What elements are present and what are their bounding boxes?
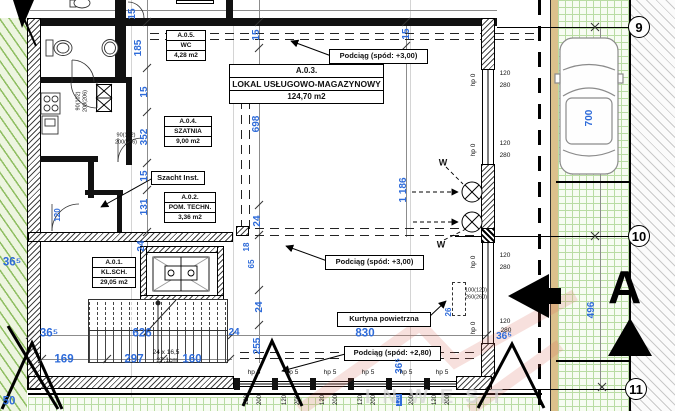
dim-label: 200 <box>295 395 301 405</box>
fan-symbols <box>462 182 482 232</box>
dim-label: 24 <box>253 215 263 226</box>
dim-label: 120 <box>500 141 511 148</box>
dim-label: 200(206) <box>115 140 137 146</box>
room-label-a05: A.0.5. WC 4,28 m2 <box>166 30 206 61</box>
callout-podciag-300-top: Podciąg (spód: +3,00) <box>329 49 428 64</box>
dim-label: 700 <box>585 110 595 127</box>
kitchen-fixtures <box>41 93 60 134</box>
clipped-room-label <box>176 0 214 4</box>
dim-label: hp 5 <box>362 370 375 377</box>
dim-label: 200 <box>333 395 339 405</box>
dim-label: W <box>439 159 448 168</box>
dim-label: 90(102) <box>76 92 82 111</box>
section-letter: A <box>608 264 641 310</box>
dim-label: 24 x 16,5 <box>153 350 180 357</box>
dim-label: 90(102) <box>117 133 136 139</box>
dim-label: 352 <box>140 129 150 146</box>
dim-label: 280 <box>501 328 512 335</box>
grid-bubble-11: 11 <box>625 378 647 400</box>
section-line-zigzag <box>2 326 544 409</box>
dim-label: hp 5 <box>248 370 261 377</box>
wc-fixtures <box>46 0 118 57</box>
dim-label: 24 <box>228 328 239 338</box>
dim-label: 24 <box>255 301 265 312</box>
dim-label: W <box>437 241 446 250</box>
dim-label: 496 <box>587 302 597 319</box>
dim-label: 160 <box>182 354 201 366</box>
dim-label: 15 <box>140 170 150 181</box>
dim-label: 1 186 <box>399 177 409 202</box>
dim-label: 169 <box>54 354 73 366</box>
floor-plan-drawing: A.0.5. WC 4,28 m2 A.0.4. SZATNIA 9,00 m2… <box>0 0 675 411</box>
room-id: A.0.4. <box>165 117 211 126</box>
dim-label: hp 0 <box>471 144 478 157</box>
dim-label: 200 <box>257 395 263 405</box>
dim-label: 626 <box>132 328 151 340</box>
room-name: LOKAL USŁUGOWO-MAGAZYNOWY <box>230 77 383 90</box>
dim-label: 280 <box>500 83 511 90</box>
room-id: A.0.1. <box>93 258 135 267</box>
dim-label: 65 <box>248 260 256 269</box>
grid-bubble-9: 9 <box>628 16 650 38</box>
dim-label: 120 <box>54 208 62 221</box>
dim-label: 280 <box>500 265 511 272</box>
dim-label: 100(120) <box>465 288 487 294</box>
dim-label: 120 <box>500 71 511 78</box>
dim-label: hp 0 <box>471 74 478 87</box>
dim-label: 200 <box>371 395 377 405</box>
room-label-a04: A.0.4. SZATNIA 9,00 m2 <box>164 116 212 147</box>
room-name: SZATNIA <box>165 126 211 136</box>
room-label-a01: A.0.1. KL.SCH. 29,05 m2 <box>92 257 136 288</box>
dim-label: 18 <box>243 243 251 252</box>
dim-label: 185 <box>134 40 144 57</box>
dim-label: hp 5 <box>436 370 449 377</box>
dim-label: 280 <box>500 153 511 160</box>
room-label-a03: A.0.3. LOKAL USŁUGOWO-MAGAZYNOWY 124,70 … <box>229 64 384 104</box>
vent-leaders <box>412 167 466 240</box>
room-name: KL.SCH. <box>93 267 135 277</box>
dim-label: 15 <box>128 8 138 19</box>
dim-label: 36⁵ <box>40 328 58 340</box>
callout-szacht: Szacht Inst. <box>151 171 205 185</box>
room-name: WC <box>167 40 205 50</box>
dim-label: 26 <box>445 308 453 317</box>
dim-label: 120 <box>396 394 402 406</box>
dim-label: 260(260) <box>465 295 487 301</box>
dim-label: 15 <box>402 28 412 39</box>
room-area: 9,00 m2 <box>165 136 211 146</box>
dim-label: 50 <box>3 396 16 408</box>
dim-label: 27,1cm <box>156 358 177 365</box>
dim-label: 120 <box>432 395 438 405</box>
door-arcs <box>52 2 144 231</box>
dim-label: 15 <box>140 86 150 97</box>
dim-label: 698 <box>252 116 262 133</box>
car-icon <box>555 38 623 174</box>
dim-label: 200 <box>445 395 451 405</box>
callout-podciag-300-mid: Podciąg (spód: +3,00) <box>325 255 424 270</box>
dim-label: 297 <box>124 354 143 366</box>
room-name: POM. TECHN. <box>165 202 215 212</box>
lift-symbol <box>153 257 209 291</box>
dim-label: hp 5 <box>286 370 299 377</box>
dim-label: 830 <box>355 328 374 340</box>
dim-label: 120 <box>500 253 511 260</box>
dim-label: 15 <box>252 29 262 40</box>
dim-label: hp 0 <box>471 322 478 335</box>
dim-label: 36⁵ <box>3 257 21 269</box>
dim-label: 120 <box>244 395 250 405</box>
dim-label: 131 <box>140 199 150 216</box>
dim-label: 120 <box>320 395 326 405</box>
room-area: 4,28 m2 <box>167 50 205 60</box>
dim-label: 200(206) <box>83 90 89 112</box>
room-area: 3,36 m2 <box>165 212 215 222</box>
room-area: 29,05 m2 <box>93 277 135 287</box>
dim-label: 120 <box>282 395 288 405</box>
section-triangle <box>608 318 652 356</box>
dim-label: 200 <box>409 395 415 405</box>
dim-label: 120 <box>500 319 511 326</box>
north-corner-marker <box>13 0 36 46</box>
room-label-a02: A.0.2. POM. TECHN. 3,36 m2 <box>164 192 216 223</box>
room-id: A.0.2. <box>165 193 215 202</box>
grid-bubble-10: 10 <box>628 225 650 247</box>
room-id: A.0.3. <box>230 65 383 77</box>
callout-podciag-280: Podciąg (spód: +2,80) <box>344 346 441 361</box>
dim-label: 255 <box>253 338 263 355</box>
room-id: A.0.5. <box>167 31 205 40</box>
dim-label: 120 <box>358 395 364 405</box>
room-area: 124,70 m2 <box>230 90 383 103</box>
dim-label: hp 0 <box>471 256 478 269</box>
dim-label: hp 5 <box>400 370 413 377</box>
callout-kurtyna: Kurtyna powietrzna <box>337 312 431 327</box>
dim-label: hp 5 <box>324 370 337 377</box>
dim-label: 24 <box>137 240 147 251</box>
shaft-x-lines <box>96 84 112 112</box>
